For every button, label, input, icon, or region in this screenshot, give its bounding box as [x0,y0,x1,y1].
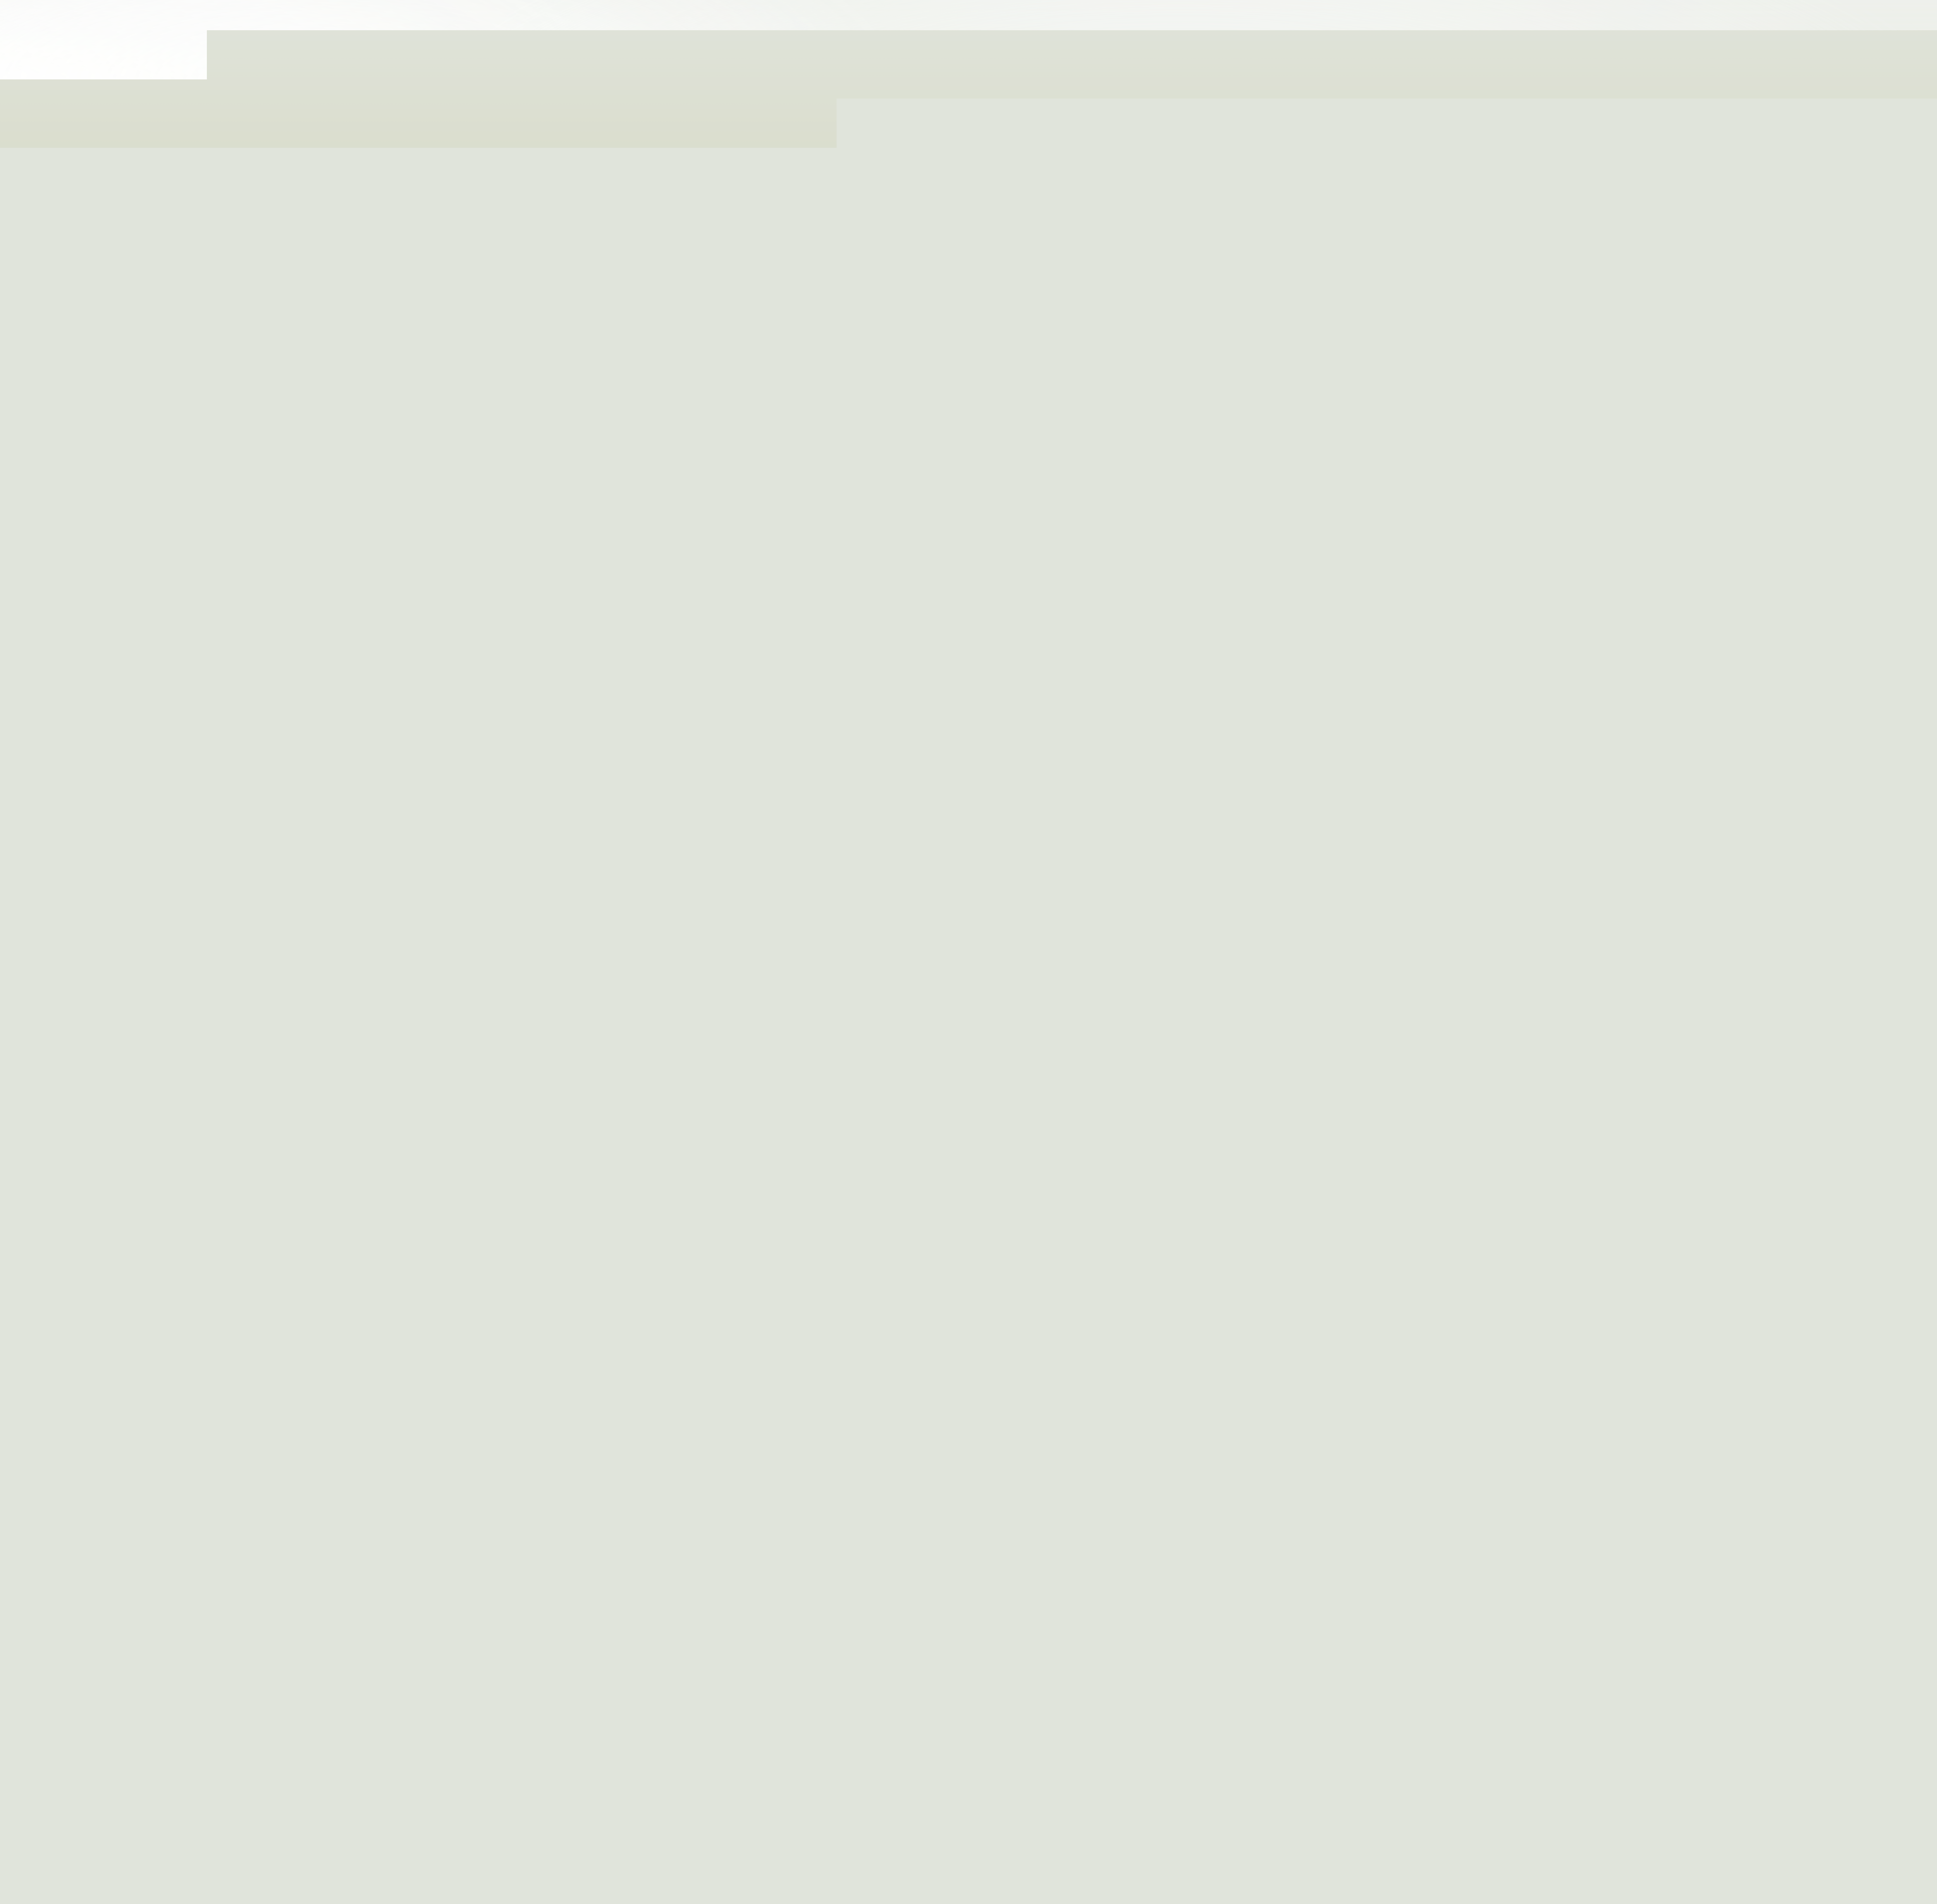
viewport [0,0,1937,1904]
atmosphere-haze [0,0,1937,1904]
aerial-masterplan-rendering [0,0,1937,1904]
